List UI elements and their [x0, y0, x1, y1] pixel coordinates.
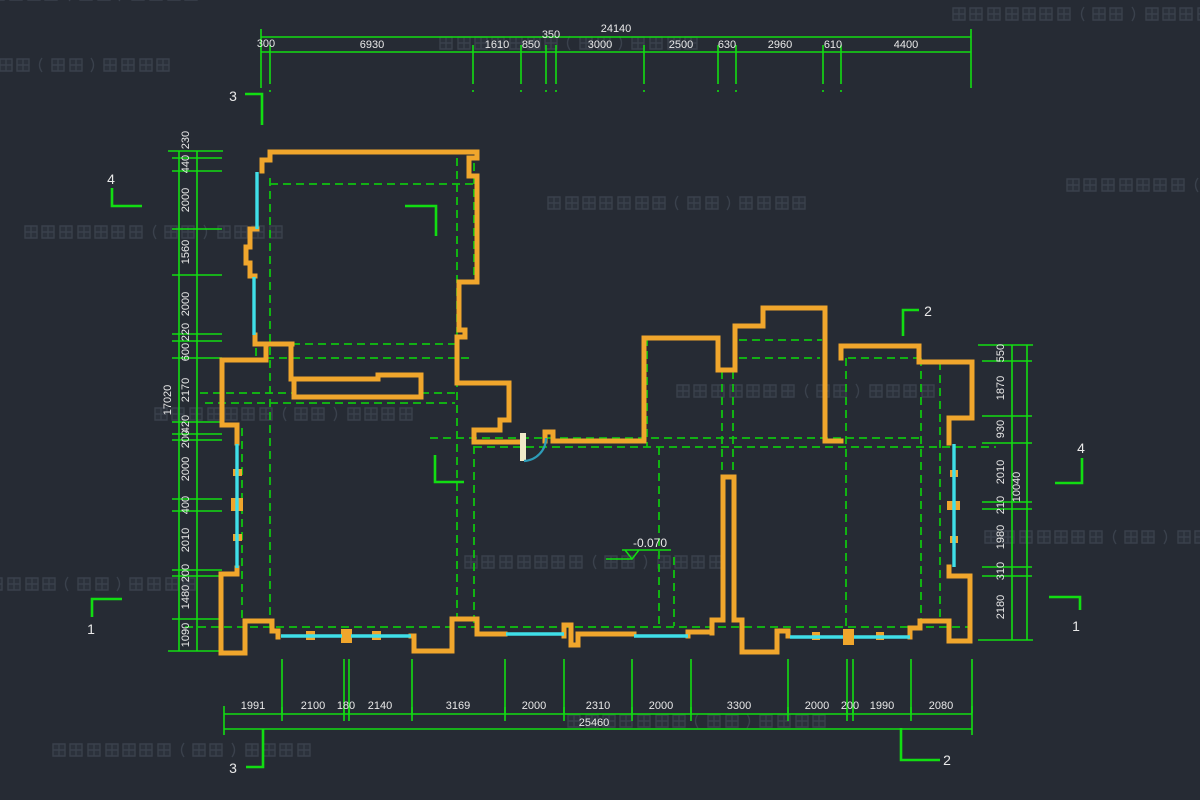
svg-text:1: 1 [1072, 618, 1080, 634]
svg-text:350: 350 [542, 29, 560, 41]
svg-text:600: 600 [180, 343, 192, 361]
svg-text:25460: 25460 [579, 717, 610, 729]
svg-text:3: 3 [229, 88, 237, 104]
svg-text:3: 3 [229, 760, 237, 776]
svg-text:2140: 2140 [368, 700, 392, 712]
svg-text:1: 1 [87, 621, 95, 637]
svg-text:610: 610 [824, 39, 842, 51]
svg-text:1991: 1991 [241, 700, 265, 712]
svg-text:-0.070: -0.070 [633, 536, 667, 550]
svg-text:400: 400 [180, 496, 192, 514]
svg-text:220: 220 [180, 323, 192, 341]
svg-text:3300: 3300 [727, 700, 751, 712]
svg-text:2000: 2000 [522, 700, 546, 712]
svg-text:2: 2 [924, 303, 932, 319]
svg-text:3169: 3169 [446, 700, 470, 712]
svg-text:2: 2 [943, 752, 951, 768]
svg-text:1090: 1090 [180, 623, 192, 647]
svg-text:2180: 2180 [995, 595, 1007, 619]
svg-text:180: 180 [337, 700, 355, 712]
svg-text:630: 630 [718, 39, 736, 51]
svg-text:2100: 2100 [301, 700, 325, 712]
svg-text:440: 440 [180, 155, 192, 173]
svg-text:24140: 24140 [601, 23, 632, 35]
svg-text:1870: 1870 [995, 376, 1007, 400]
svg-text:1560: 1560 [180, 240, 192, 264]
svg-text:200: 200 [180, 430, 192, 448]
svg-text:200: 200 [841, 700, 859, 712]
svg-text:210: 210 [995, 496, 1007, 514]
svg-text:930: 930 [995, 420, 1007, 438]
svg-text:2000: 2000 [180, 188, 192, 212]
svg-text:550: 550 [995, 344, 1007, 362]
svg-text:4: 4 [1077, 440, 1085, 456]
svg-text:300: 300 [257, 38, 275, 50]
svg-text:850: 850 [522, 39, 540, 51]
svg-text:2500: 2500 [669, 39, 693, 51]
svg-text:2000: 2000 [649, 700, 673, 712]
svg-text:2170: 2170 [180, 378, 192, 402]
svg-text:2000: 2000 [180, 457, 192, 481]
svg-text:1980: 1980 [995, 525, 1007, 549]
svg-text:2000: 2000 [180, 292, 192, 316]
svg-text:2010: 2010 [180, 528, 192, 552]
svg-text:10040: 10040 [1011, 472, 1023, 503]
svg-text:2310: 2310 [586, 700, 610, 712]
svg-text:17020: 17020 [162, 385, 174, 416]
svg-text:2010: 2010 [995, 460, 1007, 484]
svg-text:230: 230 [180, 131, 192, 149]
svg-text:3000: 3000 [588, 39, 612, 51]
svg-text:1480: 1480 [180, 585, 192, 609]
svg-text:2960: 2960 [768, 39, 792, 51]
svg-text:200: 200 [180, 564, 192, 582]
svg-text:6930: 6930 [360, 39, 384, 51]
svg-text:4: 4 [107, 171, 115, 187]
svg-text:4400: 4400 [894, 39, 918, 51]
svg-text:310: 310 [995, 562, 1007, 580]
svg-text:2080: 2080 [929, 700, 953, 712]
svg-text:1990: 1990 [870, 700, 894, 712]
svg-text:1610: 1610 [485, 39, 509, 51]
svg-text:2000: 2000 [805, 700, 829, 712]
